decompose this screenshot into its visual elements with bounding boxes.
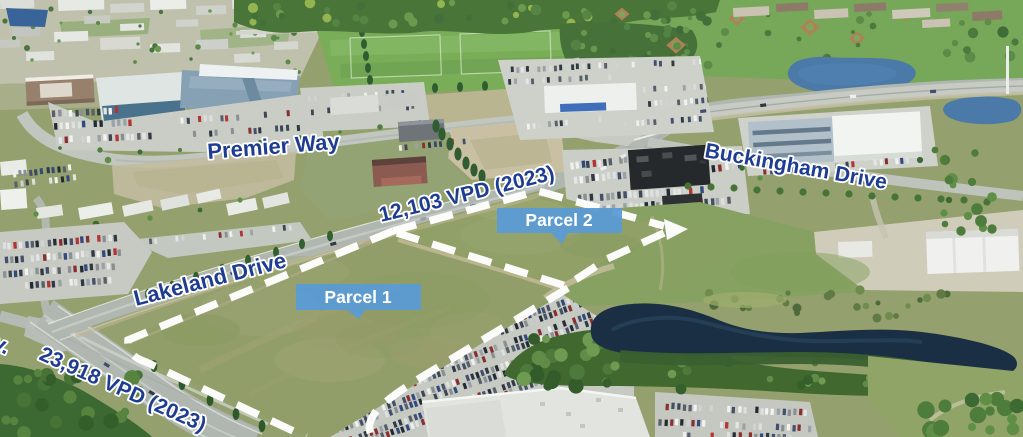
svg-text:Parcel 1: Parcel 1 bbox=[324, 287, 391, 307]
svg-text:Parcel 2: Parcel 2 bbox=[525, 210, 592, 230]
